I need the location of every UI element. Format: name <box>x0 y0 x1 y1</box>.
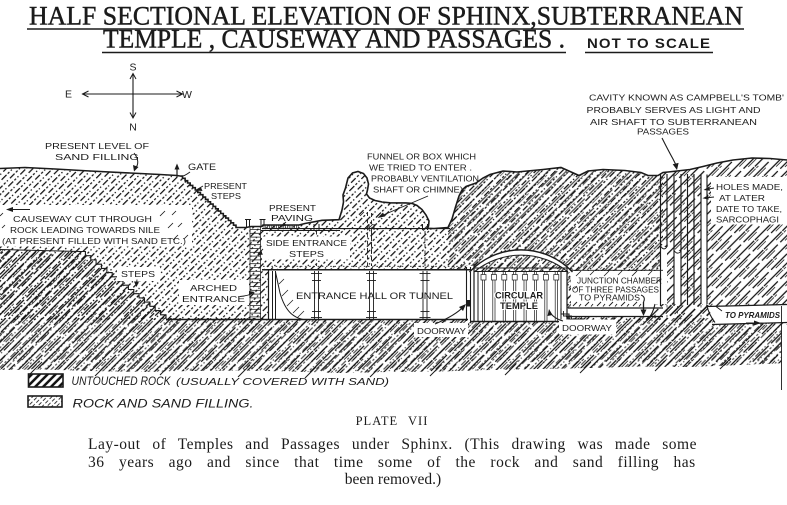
svg-text:CAUSEWAY CUT THROUGH: CAUSEWAY CUT THROUGH <box>13 214 152 224</box>
svg-text:ENTRANCE HALL OR TUNNEL: ENTRANCE HALL OR TUNNEL <box>296 291 453 301</box>
svg-text:PRESENT: PRESENT <box>204 181 247 191</box>
svg-text:(AT PRESENT FILLED WITH SAND E: (AT PRESENT FILLED WITH SAND ETC.) <box>2 236 186 246</box>
svg-text:DATE TO TAKE,: DATE TO TAKE, <box>716 204 782 214</box>
svg-text:PASSAGES: PASSAGES <box>637 127 689 137</box>
svg-text:FUNNEL OR BOX WHICH: FUNNEL OR BOX WHICH <box>367 152 476 162</box>
svg-text:PROBABLY VENTILATION: PROBABLY VENTILATION <box>371 174 479 184</box>
svg-text:CAVITY KNOWN AS CAMPBELL'S TOM: CAVITY KNOWN AS CAMPBELL'S TOMB' <box>589 93 784 103</box>
svg-text:GATE: GATE <box>188 162 216 173</box>
svg-text:AT LATER: AT LATER <box>719 193 765 203</box>
svg-text:ROCK LEADING TOWARDS NILE: ROCK LEADING TOWARDS NILE <box>10 225 160 235</box>
svg-text:TEMPLE: TEMPLE <box>500 301 538 311</box>
svg-text:UNTOUCHED ROCK: UNTOUCHED ROCK <box>72 376 172 388</box>
svg-text:TO PYRAMIDS: TO PYRAMIDS <box>579 294 640 303</box>
svg-text:S: S <box>129 62 136 74</box>
svg-text:HOLES MADE,: HOLES MADE, <box>716 182 783 192</box>
svg-text:PROBABLY SERVES AS LIGHT AND: PROBABLY SERVES AS LIGHT AND <box>587 105 761 115</box>
svg-text:ENTRANCE: ENTRANCE <box>182 294 245 304</box>
svg-text:TO PYRAMIDS: TO PYRAMIDS <box>725 310 780 320</box>
svg-text:JUNCTION CHAMBER: JUNCTION CHAMBER <box>577 277 662 286</box>
svg-text:ROCK AND SAND FILLING.: ROCK AND SAND FILLING. <box>73 399 254 411</box>
svg-text:PLATE VII: PLATE VII <box>356 414 429 428</box>
svg-text:SAND FILLING: SAND FILLING <box>55 152 139 162</box>
svg-text:WE TRIED TO ENTER .: WE TRIED TO ENTER . <box>369 163 472 173</box>
svg-text:SHAFT OR CHIMNEY: SHAFT OR CHIMNEY <box>373 185 466 195</box>
svg-text:PRESENT: PRESENT <box>269 203 316 213</box>
svg-text:AIR SHAFT TO SUBTERRANEAN: AIR SHAFT TO SUBTERRANEAN <box>590 117 757 127</box>
svg-text:STEPS: STEPS <box>289 249 324 259</box>
svg-text:DOORWAY: DOORWAY <box>562 323 612 333</box>
svg-text:NOT TO SCALE: NOT TO SCALE <box>587 35 711 51</box>
svg-text:W: W <box>182 89 192 101</box>
svg-text:been removed.): been removed.) <box>345 471 441 488</box>
svg-text:N: N <box>129 122 137 134</box>
svg-text:(USUALLY COVERED WITH SAND): (USUALLY COVERED WITH SAND) <box>176 377 389 388</box>
svg-text:STEPS: STEPS <box>121 269 155 279</box>
svg-text:STEPS: STEPS <box>211 191 241 201</box>
svg-text:CIRCULAR: CIRCULAR <box>495 291 544 301</box>
svg-text:SIDE ENTRANCE: SIDE ENTRANCE <box>266 238 347 248</box>
svg-text:Lay-out of Temples and Passage: Lay-out of Temples and Passages under Sp… <box>88 436 697 453</box>
svg-text:DOORWAY: DOORWAY <box>417 326 466 336</box>
svg-text:36 years ago and since that ti: 36 years ago and since that time some of… <box>88 454 696 471</box>
svg-text:PRESENT LEVEL OF: PRESENT LEVEL OF <box>45 141 149 151</box>
svg-text:E: E <box>65 89 72 101</box>
svg-text:SARCOPHAGI: SARCOPHAGI <box>716 215 779 225</box>
svg-text:TEMPLE , CAUSEWAY AND PASSAGES: TEMPLE , CAUSEWAY AND PASSAGES . <box>103 25 565 54</box>
svg-text:PAVING: PAVING <box>271 213 313 223</box>
svg-text:ARCHED: ARCHED <box>190 283 237 293</box>
